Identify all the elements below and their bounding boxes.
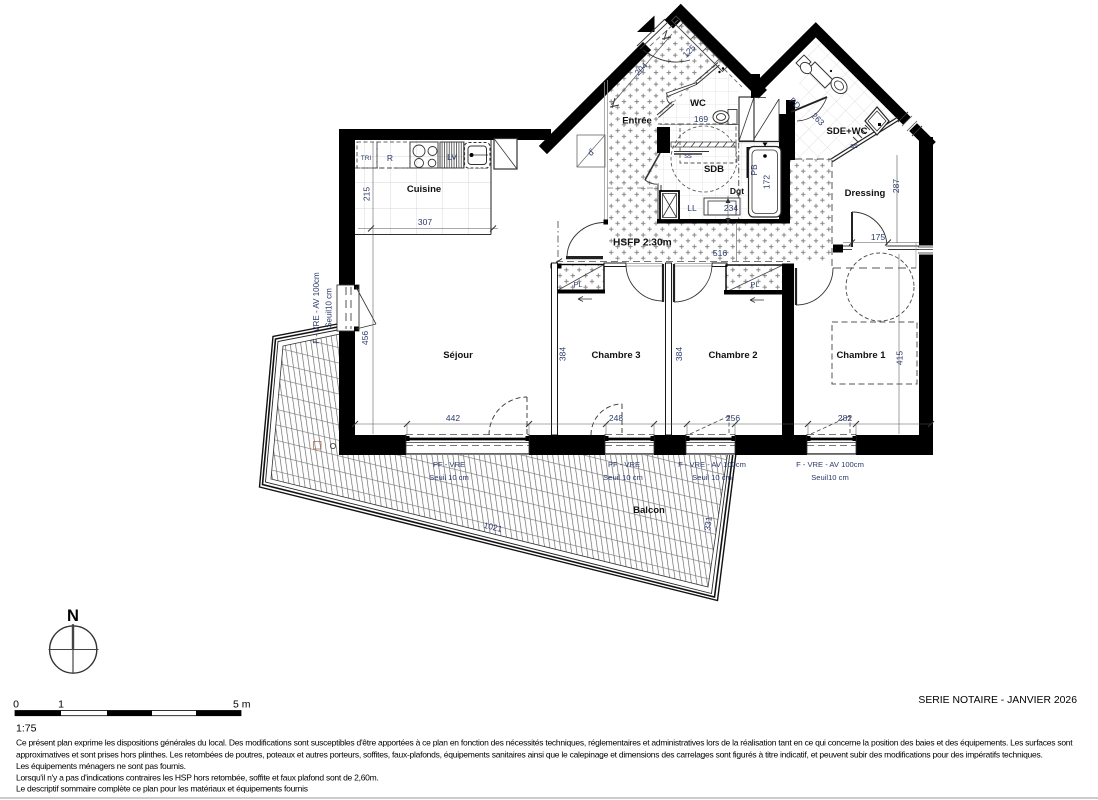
svg-text:TRI: TRI: [361, 155, 372, 162]
svg-text:SERIE NOTAIRE - JANVIER 2026: SERIE NOTAIRE - JANVIER 2026: [918, 695, 1077, 706]
svg-text:248: 248: [609, 413, 623, 423]
svg-text:LV: LV: [447, 152, 457, 162]
svg-text:384: 384: [558, 347, 568, 361]
svg-text:Chambre 1: Chambre 1: [836, 350, 886, 361]
svg-text:Dgt: Dgt: [730, 186, 744, 196]
svg-text:172: 172: [762, 175, 772, 189]
svg-text:N: N: [67, 607, 79, 625]
svg-text:WC: WC: [690, 98, 706, 109]
svg-text:PF - VRE: PF - VRE: [433, 460, 465, 469]
svg-text:LL: LL: [687, 203, 697, 213]
svg-text:215: 215: [362, 187, 372, 201]
svg-text:F - VRE - AV 100cm: F - VRE - AV 100cm: [312, 272, 321, 344]
svg-text:256: 256: [726, 413, 740, 423]
svg-text:F - VRE - AV 100cm: F - VRE - AV 100cm: [796, 460, 864, 469]
svg-text:1: 1: [58, 699, 64, 711]
svg-text:384: 384: [674, 347, 684, 361]
svg-text:Chambre 2: Chambre 2: [708, 350, 757, 361]
svg-text:175: 175: [871, 232, 885, 242]
svg-text:Seuil 10 cm: Seuil 10 cm: [692, 473, 732, 482]
svg-text:SDB: SDB: [704, 164, 724, 175]
svg-text:HSFP 2.30m: HSFP 2.30m: [613, 238, 672, 249]
svg-text:287: 287: [891, 179, 901, 193]
svg-text:0: 0: [13, 699, 19, 711]
svg-text:Cuisine: Cuisine: [407, 184, 441, 195]
svg-text:Seuil 10 cm: Seuil 10 cm: [603, 473, 643, 482]
svg-text:282: 282: [838, 413, 852, 423]
svg-text:Lorsqu'il n'y a pas d'indicati: Lorsqu'il n'y a pas d'indications contra…: [16, 773, 379, 783]
svg-text:331: 331: [702, 516, 714, 532]
svg-text:PL: PL: [750, 280, 759, 289]
svg-text:5 m: 5 m: [233, 699, 251, 711]
svg-text:ss: ss: [850, 141, 858, 150]
svg-text:Seuil 10 cm: Seuil 10 cm: [429, 473, 469, 482]
svg-text:415: 415: [895, 351, 905, 365]
svg-text:Les équipements ménagers ne so: Les équipements ménagers ne sont pas fou…: [16, 761, 186, 771]
svg-text:R: R: [387, 153, 393, 163]
svg-text:SDE+WC: SDE+WC: [827, 126, 868, 137]
svg-text:Chambre 3: Chambre 3: [591, 350, 640, 361]
svg-text:Ce présent plan exprime les di: Ce présent plan exprime les dispositions…: [16, 738, 1073, 748]
svg-text:234: 234: [724, 203, 738, 213]
svg-text:Dressing: Dressing: [845, 188, 886, 199]
svg-text:approximatives et sont prises: approximatives et sont prises hors plint…: [16, 750, 1043, 760]
svg-text:ss: ss: [684, 151, 692, 160]
svg-text:Le descriptif sommaire complèt: Le descriptif sommaire complète ce plan …: [16, 784, 308, 794]
svg-text:456: 456: [360, 331, 370, 345]
svg-text:169: 169: [694, 114, 708, 124]
svg-text:Seuil10 cm: Seuil10 cm: [325, 288, 334, 328]
svg-text:F - VRE - AV 100cm: F - VRE - AV 100cm: [678, 460, 746, 469]
svg-text:1:75: 1:75: [16, 723, 37, 735]
svg-text:Entrée: Entrée: [622, 116, 652, 127]
svg-text:516: 516: [713, 248, 727, 258]
svg-text:307: 307: [418, 217, 432, 227]
svg-text:PF - VRE: PF - VRE: [608, 460, 640, 469]
svg-text:Seuil10 cm: Seuil10 cm: [811, 473, 849, 482]
svg-text:Balcon: Balcon: [633, 505, 665, 516]
svg-text:PL: PL: [573, 280, 582, 289]
svg-text:Séjour: Séjour: [443, 350, 473, 361]
svg-text:PB: PB: [749, 164, 759, 176]
svg-text:442: 442: [446, 413, 460, 423]
